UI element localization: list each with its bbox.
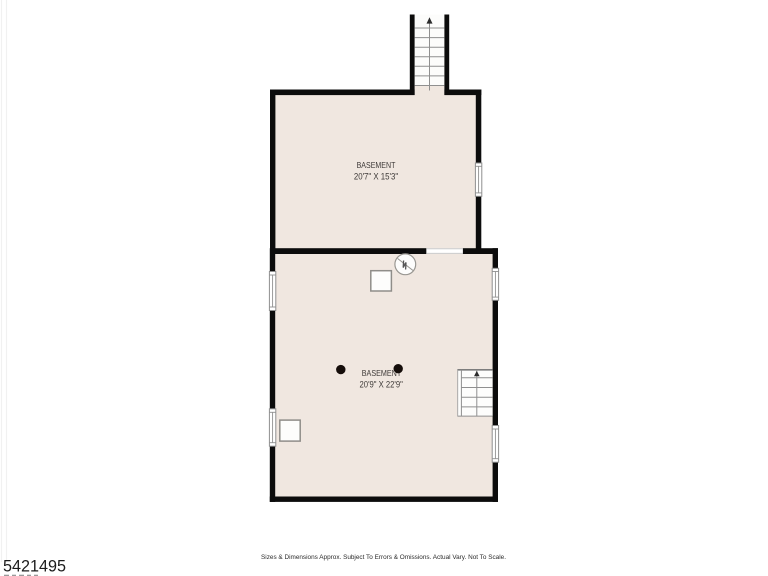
svg-text:BASEMENT: BASEMENT xyxy=(357,160,396,170)
svg-text:Sizes & Dimensions Approx. Sub: Sizes & Dimensions Approx. Subject To Er… xyxy=(261,554,506,561)
svg-text:20'9" X 22'9": 20'9" X 22'9" xyxy=(360,379,403,389)
svg-text:20'7" X 15'3": 20'7" X 15'3" xyxy=(354,172,398,182)
svg-text:5421495: 5421495 xyxy=(3,558,66,576)
